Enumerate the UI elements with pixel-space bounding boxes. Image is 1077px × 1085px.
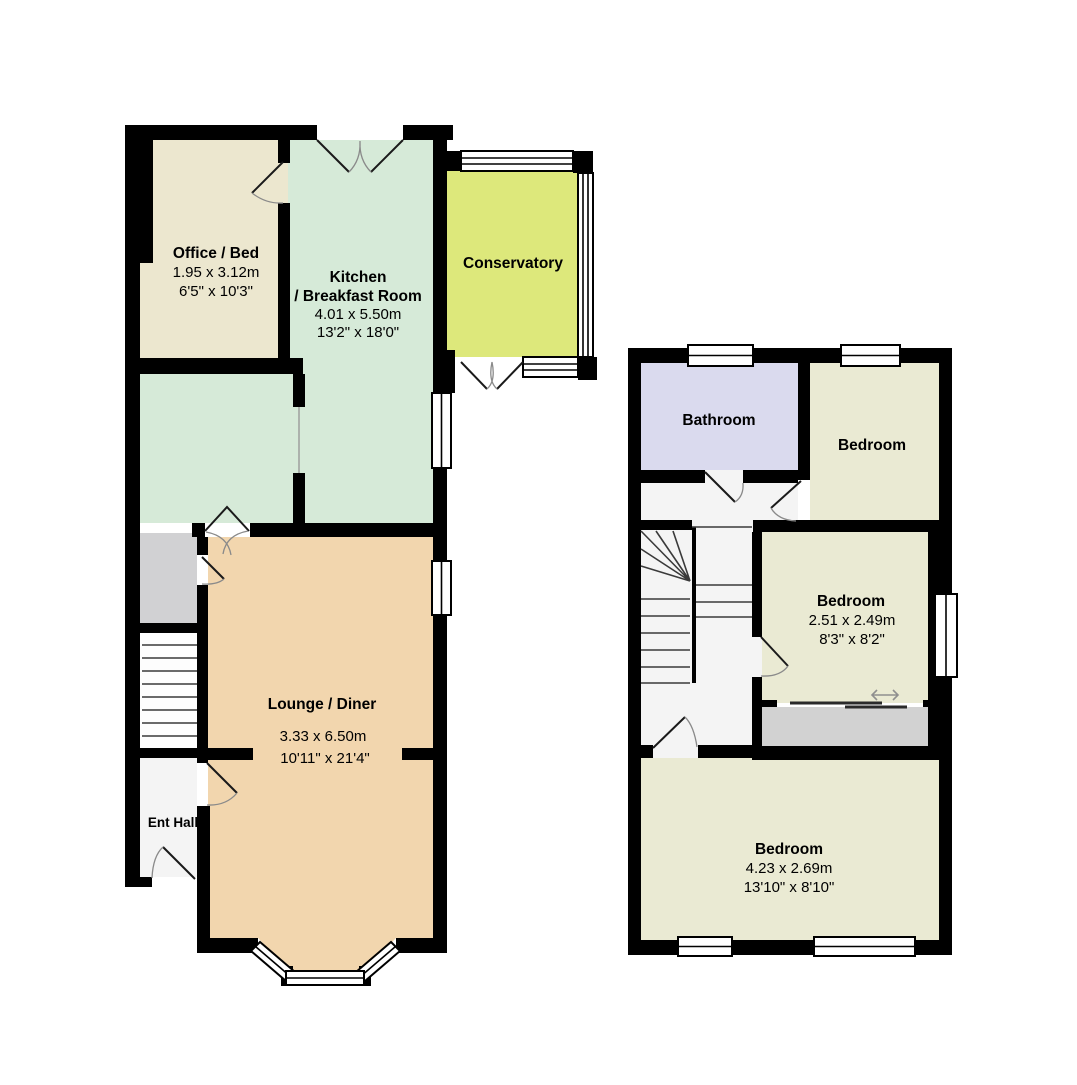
bedroom-middle-dim-metric: 2.51 x 2.49m bbox=[809, 612, 896, 629]
bedroom-back-dim-imperial: 13'10" x 8'10" bbox=[744, 879, 835, 896]
bedroom-middle-dim-imperial: 8'3" x 8'2" bbox=[819, 631, 885, 648]
kitchen-dim-metric: 4.01 x 5.50m bbox=[315, 306, 402, 323]
floorplan-page: Office / Bed 1.95 x 3.12m 6'5" x 10'3" K… bbox=[0, 0, 1077, 1080]
office-dim-imperial: 6'5" x 10'3" bbox=[179, 283, 253, 300]
bedroom-middle-window bbox=[935, 594, 957, 677]
ent-hall-room-name: Ent Hall bbox=[148, 815, 198, 830]
office-room-name: Office / Bed bbox=[173, 245, 259, 262]
office-dim-metric: 1.95 x 3.12m bbox=[173, 264, 260, 281]
bedroom-back-dim-metric: 4.23 x 2.69m bbox=[746, 860, 833, 877]
floorplan-drawing: Office / Bed 1.95 x 3.12m 6'5" x 10'3" K… bbox=[0, 0, 1077, 1080]
landing-lower-fill bbox=[641, 523, 762, 758]
bedroom-middle-room-name: Bedroom bbox=[817, 593, 885, 610]
kitchen-room-name-line1: Kitchen bbox=[330, 269, 387, 286]
lounge-dim-metric: 3.33 x 6.50m bbox=[280, 728, 367, 745]
kitchen-window bbox=[432, 393, 451, 468]
eaves-storage-fill bbox=[762, 707, 928, 748]
bedroom-back-room-name: Bedroom bbox=[755, 841, 823, 858]
rear-reception-fill bbox=[140, 374, 297, 523]
bedroom-back-window-right bbox=[814, 937, 915, 956]
bedroom-front-room-name: Bedroom bbox=[838, 437, 906, 454]
ground-floor-plan: Office / Bed 1.95 x 3.12m 6'5" x 10'3" K… bbox=[125, 125, 597, 986]
conservatory-top-window bbox=[461, 151, 573, 171]
lounge-window bbox=[432, 561, 451, 615]
kitchen-room-name-line2: / Breakfast Room bbox=[294, 288, 421, 305]
bathroom-room-name: Bathroom bbox=[682, 412, 755, 429]
bedroom-front-window bbox=[841, 345, 900, 366]
first-floor-plan: Bathroom Bedroom Bedroom 2.51 x 2.49m 8'… bbox=[628, 345, 957, 956]
bathroom-window bbox=[688, 345, 753, 366]
conservatory-room-name: Conservatory bbox=[463, 255, 563, 272]
kitchen-dim-imperial: 13'2" x 18'0" bbox=[317, 324, 399, 341]
conservatory-french-doors bbox=[461, 362, 523, 389]
ground-stairs-fill bbox=[140, 633, 197, 748]
lounge-dim-imperial: 10'11" x 21'4" bbox=[280, 750, 370, 767]
conservatory-right-window bbox=[578, 173, 593, 357]
bedroom-back-window-left bbox=[678, 937, 732, 956]
conservatory-bottom-window bbox=[523, 357, 578, 377]
porch-fill bbox=[140, 533, 197, 623]
lounge-room-name: Lounge / Diner bbox=[268, 696, 377, 713]
